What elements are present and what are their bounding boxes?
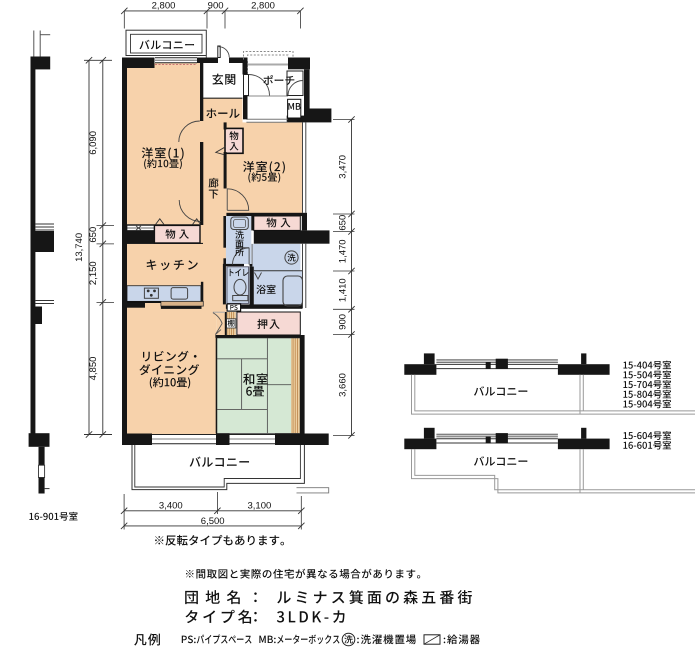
svg-text:6,090: 6,090 [88, 131, 99, 155]
svg-text:4,850: 4,850 [88, 357, 99, 381]
svg-text:3,100: 3,100 [248, 501, 272, 512]
svg-text:1,470: 1,470 [337, 239, 348, 263]
svg-text:3,470: 3,470 [337, 155, 348, 179]
svg-text:6,500: 6,500 [201, 516, 225, 527]
svg-text:13,740: 13,740 [74, 233, 85, 262]
svg-text:2,150: 2,150 [88, 261, 99, 285]
svg-text:3,400: 3,400 [159, 501, 183, 512]
svg-text:1,410: 1,410 [337, 278, 348, 302]
svg-text:2,800: 2,800 [152, 1, 176, 12]
svg-text:900: 900 [337, 314, 348, 330]
svg-text:650: 650 [88, 227, 99, 243]
svg-text:650: 650 [337, 215, 348, 231]
svg-text:3,660: 3,660 [337, 373, 348, 397]
svg-text:900: 900 [208, 1, 224, 12]
svg-text:2,800: 2,800 [251, 1, 275, 12]
